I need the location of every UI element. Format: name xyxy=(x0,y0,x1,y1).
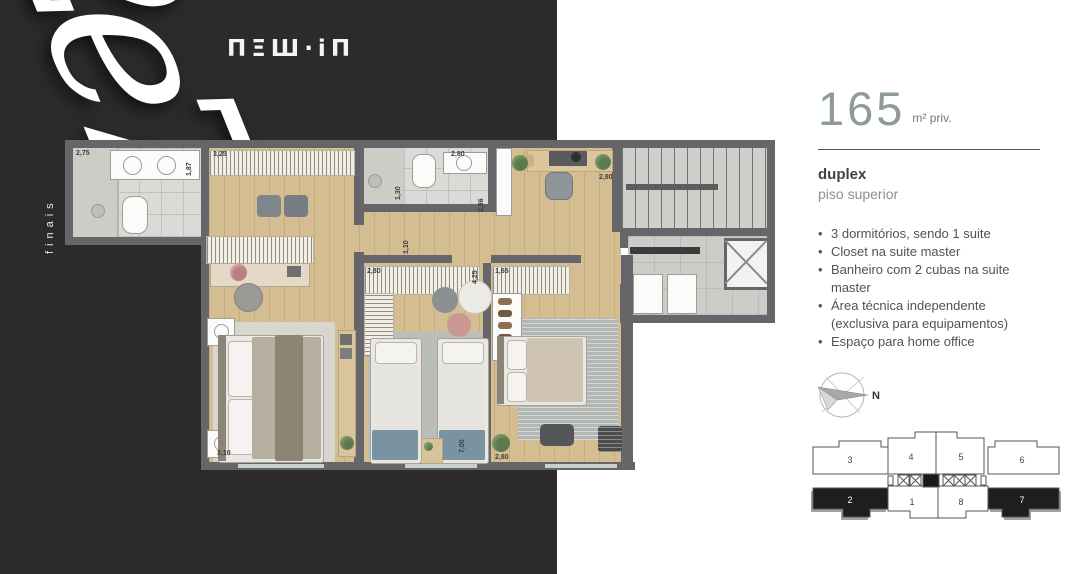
dimension-label: 2,80 xyxy=(495,454,509,461)
shoes-icon xyxy=(498,298,512,305)
console-box xyxy=(340,348,352,359)
toilet-icon xyxy=(122,196,148,234)
toilet-icon xyxy=(412,154,436,188)
plant-icon xyxy=(340,436,354,450)
bedside-table xyxy=(421,438,443,464)
wall xyxy=(767,140,775,323)
keyplan-unit-2-label: 2 xyxy=(847,495,852,505)
dimension-label: 1,30 xyxy=(395,186,402,200)
spec-panel: 165 m² priv. duplex piso superior • 3 do… xyxy=(818,84,1050,351)
pillow-icon xyxy=(228,341,254,397)
tech-bench xyxy=(630,247,700,254)
dimension-label: 1,10 xyxy=(403,240,410,254)
stool xyxy=(234,283,263,312)
closet-rack xyxy=(209,150,355,176)
keyplan-unit-5-label: 5 xyxy=(958,452,963,462)
dimension-label: 2,80 xyxy=(451,151,465,158)
feature-item: • Espaço para home office xyxy=(818,333,1050,351)
plant-icon xyxy=(595,154,611,170)
page: 2e7 finais ΠΞШ·iΠ xyxy=(0,0,1080,574)
closet-rack xyxy=(206,236,314,264)
feature-item: • Banheiro com 2 cubas na suite master xyxy=(818,261,1050,297)
feature-item: • 3 dormitórios, sendo 1 suite xyxy=(818,225,1050,243)
plant-icon xyxy=(492,434,510,452)
dimension-label: 2,80 xyxy=(599,174,613,181)
wall xyxy=(620,315,775,323)
svg-text:N: N xyxy=(872,390,880,402)
pouf xyxy=(257,195,281,217)
plant-icon xyxy=(512,155,528,171)
feature-item-continuation: (exclusiva para equipamentos) xyxy=(818,315,1050,333)
dimension-label: 1,65 xyxy=(495,268,509,275)
dimension-label: 2,75 xyxy=(76,150,90,157)
wall xyxy=(612,146,620,232)
pillow-icon xyxy=(507,340,527,370)
brand-logo: ΠΞШ·iΠ xyxy=(227,36,355,62)
feature-list: • 3 dormitórios, sendo 1 suite • Closet … xyxy=(818,225,1050,351)
wall xyxy=(364,255,452,263)
window xyxy=(238,464,324,468)
headboard xyxy=(497,336,504,404)
keyplan-unit-3-label: 3 xyxy=(847,455,852,465)
compass-icon: N xyxy=(806,366,894,424)
throw-blanket xyxy=(275,335,303,461)
pillow-icon xyxy=(228,399,254,455)
keyplan-unit-4-label: 4 xyxy=(908,452,913,462)
dresser-box xyxy=(287,266,301,277)
area-value: 165 xyxy=(818,84,905,134)
wall xyxy=(201,140,209,470)
lounge-chair xyxy=(598,426,622,452)
console-box xyxy=(340,334,352,345)
dimension-label: 4,25 xyxy=(472,270,479,284)
wall xyxy=(620,236,628,248)
keyplan-unit-1-label: 1 xyxy=(909,497,914,507)
sink-icon xyxy=(157,156,176,175)
pouf xyxy=(447,313,471,337)
finais-vertical-label: finais xyxy=(44,194,56,254)
unit-type-label: duplex xyxy=(818,166,1050,183)
monitor-icon xyxy=(549,151,587,166)
window xyxy=(405,464,477,468)
dimension-label: 3,25 xyxy=(213,151,227,158)
wall xyxy=(354,146,364,225)
stair-rail xyxy=(626,184,718,190)
shelf xyxy=(496,148,512,216)
staircase xyxy=(620,146,771,234)
pouf xyxy=(284,195,308,217)
pillow-icon xyxy=(507,372,527,402)
sink-icon xyxy=(123,156,142,175)
dimension-label: 7,00 xyxy=(459,439,466,453)
window xyxy=(545,464,617,468)
area-row: 165 m² priv. xyxy=(818,84,1050,134)
area-unit: m² priv. xyxy=(912,111,951,125)
keyplan-unit-6-label: 6 xyxy=(1019,455,1024,465)
dimension-label: 3,10 xyxy=(217,450,231,457)
feature-item: • Área técnica independente xyxy=(818,297,1050,315)
pillow-icon xyxy=(375,342,417,364)
dimension-label: 2,80 xyxy=(367,268,381,275)
wall xyxy=(620,228,775,236)
dimension-label: 1,87 xyxy=(186,162,193,176)
shoes-icon xyxy=(498,322,512,329)
shower-head-icon xyxy=(91,204,105,218)
duvet xyxy=(527,338,583,402)
pillow-icon xyxy=(442,342,484,364)
keyplan: 3 4 5 6 2 1 8 7 xyxy=(810,428,1064,526)
floor-label: piso superior xyxy=(818,186,1050,202)
decor-ball xyxy=(571,152,581,162)
shaft-x-icon xyxy=(724,238,772,290)
bench xyxy=(540,424,574,446)
divider xyxy=(818,149,1040,150)
keyplan-unit-7-label: 7 xyxy=(1019,495,1024,505)
wall xyxy=(491,255,581,263)
shower-head-icon xyxy=(368,174,382,188)
keyplan-unit-8-label: 8 xyxy=(958,497,963,507)
wall xyxy=(65,140,775,148)
flowers-icon xyxy=(230,264,247,281)
shoes-icon xyxy=(498,310,512,317)
feature-item: • Closet na suite master xyxy=(818,243,1050,261)
pouf xyxy=(458,280,492,314)
wall xyxy=(488,146,496,212)
blanket xyxy=(372,430,418,460)
wall xyxy=(65,140,73,245)
headboard xyxy=(218,335,226,461)
equipment-unit xyxy=(633,274,663,314)
dimension-label: 2,86 xyxy=(478,198,485,212)
pouf xyxy=(432,287,458,313)
wall xyxy=(65,237,209,245)
equipment-unit xyxy=(667,274,697,314)
floor-plan: 2,75 1,87 3,25 2,80 1,30 2,86 2,80 1,10 … xyxy=(65,138,777,474)
office-chair xyxy=(545,172,573,200)
plant-icon xyxy=(424,442,433,451)
wall xyxy=(360,204,496,212)
